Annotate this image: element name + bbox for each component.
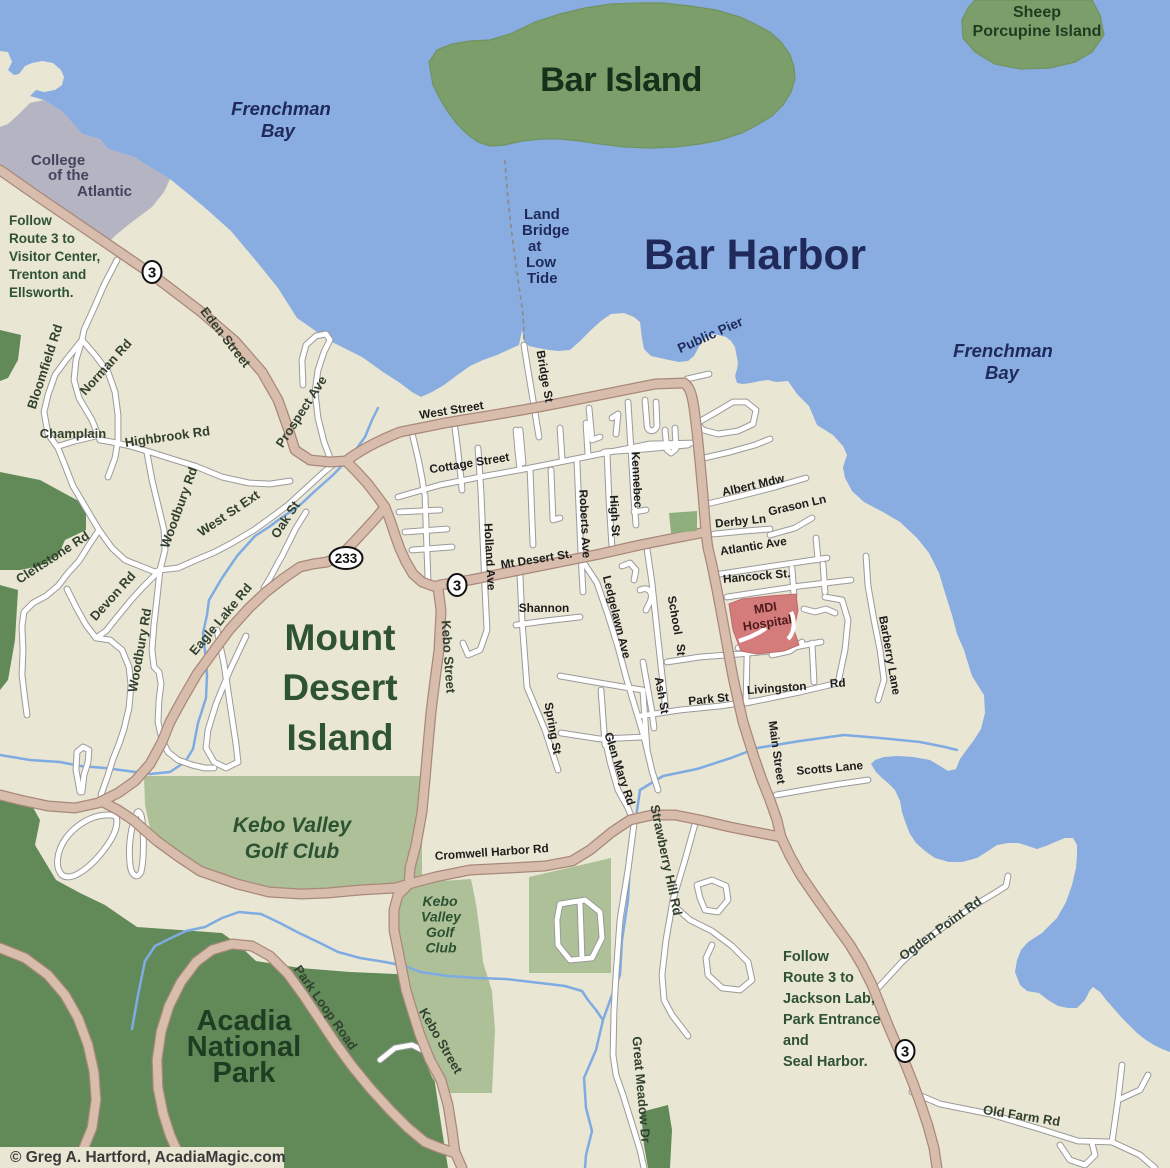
svg-text:Desert: Desert bbox=[282, 667, 397, 708]
svg-text:and: and bbox=[783, 1033, 809, 1049]
svg-text:Low: Low bbox=[526, 254, 556, 271]
svg-text:Land: Land bbox=[524, 206, 560, 223]
svg-text:Bar Island: Bar Island bbox=[540, 61, 702, 99]
svg-text:3: 3 bbox=[901, 1044, 909, 1061]
svg-text:Bay: Bay bbox=[261, 120, 297, 141]
svg-text:Club: Club bbox=[425, 940, 457, 956]
svg-text:Bar Harbor: Bar Harbor bbox=[644, 232, 866, 279]
svg-text:Kennebec: Kennebec bbox=[629, 451, 646, 508]
svg-text:Golf Club: Golf Club bbox=[245, 840, 340, 863]
svg-text:Ellsworth.: Ellsworth. bbox=[9, 285, 74, 300]
svg-text:Seal Harbor.: Seal Harbor. bbox=[783, 1054, 868, 1070]
svg-text:Visitor Center,: Visitor Center, bbox=[9, 249, 100, 264]
svg-text:Bridge: Bridge bbox=[522, 222, 570, 239]
svg-text:Sheep: Sheep bbox=[1013, 4, 1061, 21]
svg-text:Rd: Rd bbox=[829, 675, 846, 690]
svg-text:Route 3 to: Route 3 to bbox=[783, 970, 854, 986]
svg-text:Kebo Valley: Kebo Valley bbox=[233, 814, 353, 837]
svg-text:Follow: Follow bbox=[9, 213, 52, 228]
svg-text:Park Entrance: Park Entrance bbox=[783, 1012, 881, 1028]
svg-text:of the: of the bbox=[48, 167, 89, 184]
svg-text:3: 3 bbox=[453, 578, 461, 595]
svg-text:233: 233 bbox=[335, 551, 358, 566]
svg-text:Kebo: Kebo bbox=[423, 893, 458, 909]
svg-text:Shannon: Shannon bbox=[519, 601, 569, 615]
svg-text:© Greg A. Hartford, AcadiaMagi: © Greg A. Hartford, AcadiaMagic.com bbox=[10, 1149, 286, 1166]
svg-text:Porcupine Island: Porcupine Island bbox=[973, 23, 1102, 40]
svg-text:Route 3 to: Route 3 to bbox=[9, 231, 75, 246]
svg-text:St: St bbox=[674, 644, 689, 657]
svg-text:Golf: Golf bbox=[426, 924, 455, 940]
svg-text:Mount: Mount bbox=[285, 617, 396, 658]
svg-text:Atlantic: Atlantic bbox=[77, 183, 132, 200]
svg-text:Park: Park bbox=[213, 1057, 277, 1089]
svg-text:Valley: Valley bbox=[421, 909, 462, 925]
svg-text:Jackson Lab,: Jackson Lab, bbox=[783, 991, 875, 1007]
svg-text:3: 3 bbox=[148, 265, 156, 282]
svg-text:Bay: Bay bbox=[985, 362, 1021, 383]
svg-text:Frenchman: Frenchman bbox=[231, 98, 331, 119]
svg-text:at: at bbox=[528, 238, 541, 255]
svg-text:Trenton and: Trenton and bbox=[9, 267, 86, 282]
svg-text:Frenchman: Frenchman bbox=[953, 340, 1053, 361]
svg-text:Island: Island bbox=[287, 717, 394, 758]
svg-text:Tide: Tide bbox=[527, 270, 558, 287]
svg-text:Follow: Follow bbox=[783, 949, 830, 965]
svg-text:Champlain: Champlain bbox=[40, 426, 107, 441]
svg-text:High St: High St bbox=[607, 495, 623, 537]
